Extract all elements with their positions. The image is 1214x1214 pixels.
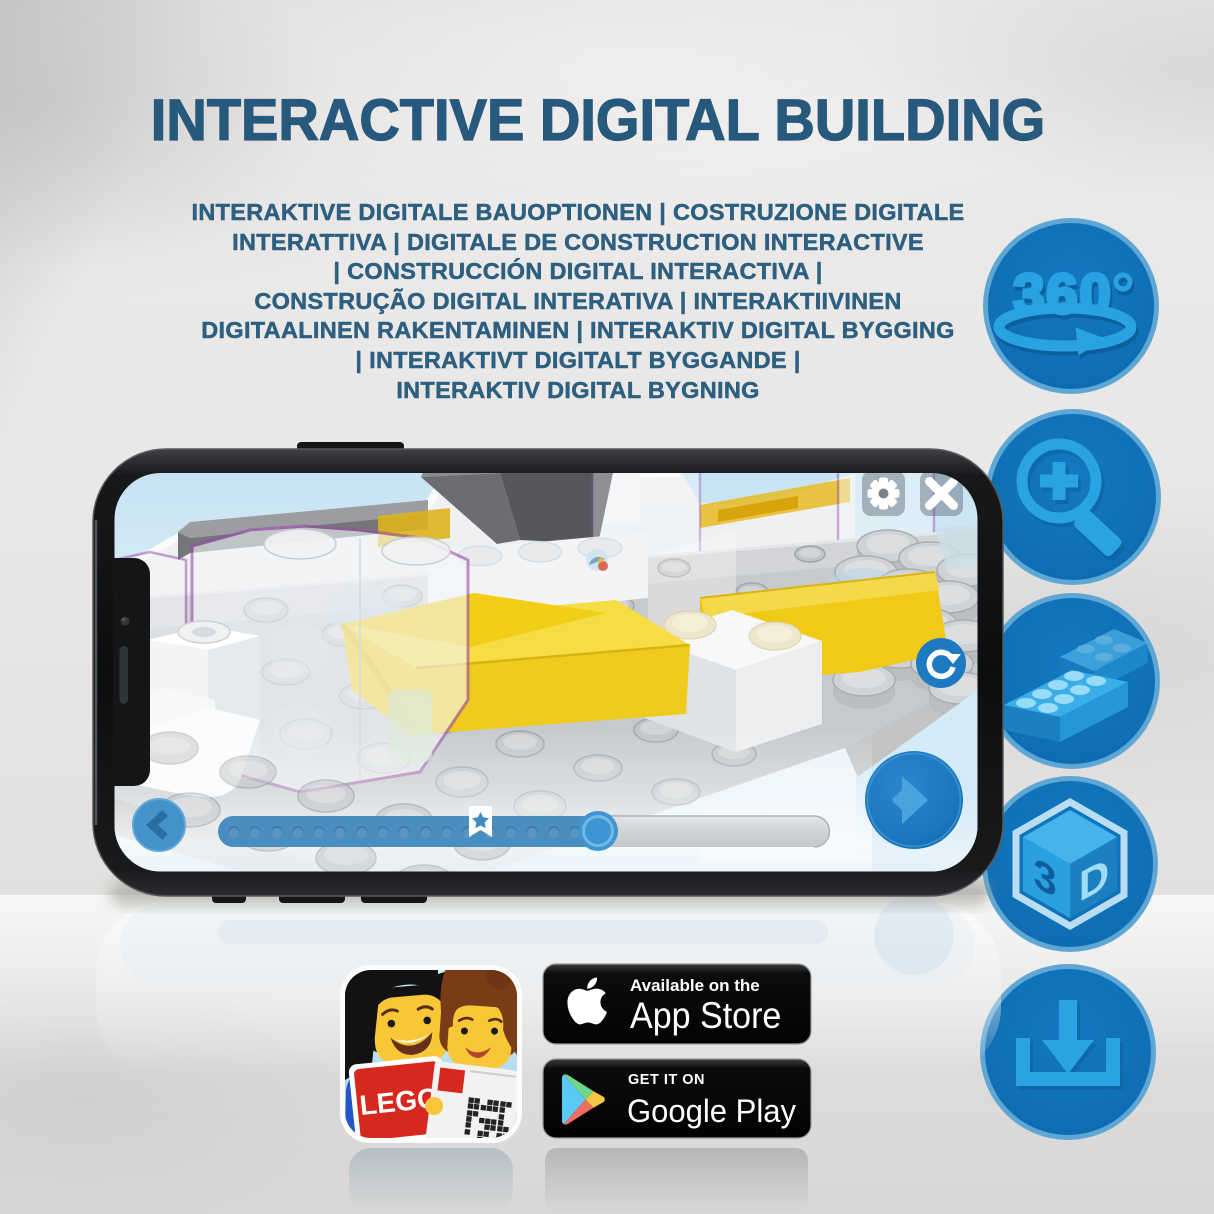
svg-text:Google Play: Google Play: [627, 1093, 796, 1130]
svg-text:Available on the: Available on the: [630, 976, 760, 995]
svg-text:App Store: App Store: [630, 995, 781, 1037]
svg-text:GET IT ON: GET IT ON: [628, 1072, 705, 1088]
